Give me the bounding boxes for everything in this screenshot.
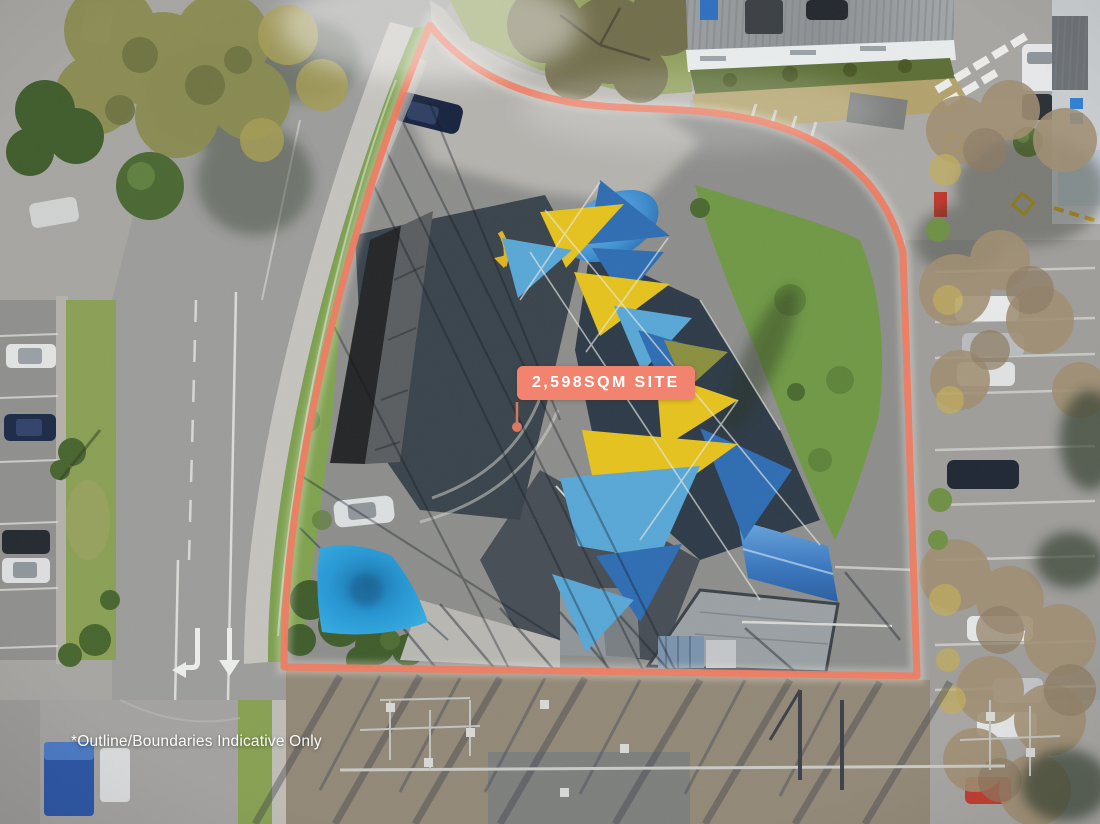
aerial-site-photo: 2,598SQM SITE *Outline/Boundaries Indica… bbox=[0, 0, 1100, 824]
vignette bbox=[0, 0, 1100, 824]
aerial-scene bbox=[0, 0, 1100, 824]
boundary-disclaimer-text: *Outline/Boundaries Indicative Only bbox=[71, 733, 322, 751]
site-area-badge: 2,598SQM SITE bbox=[517, 366, 695, 400]
